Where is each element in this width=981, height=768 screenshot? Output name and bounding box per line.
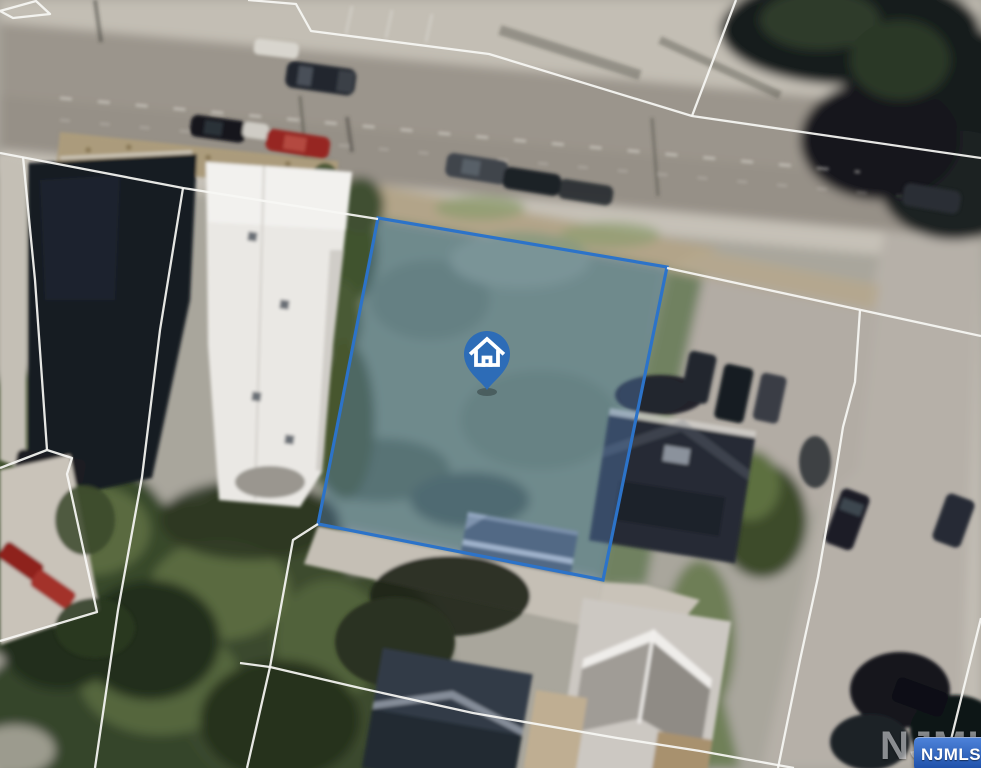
highlighted-parcel[interactable] [318, 218, 667, 580]
aerial-map-viewport[interactable]: NJMLS NJMLS [0, 0, 981, 768]
satellite-imagery-layer [0, 0, 981, 768]
njmls-watermark-badge: NJMLS [914, 737, 981, 768]
